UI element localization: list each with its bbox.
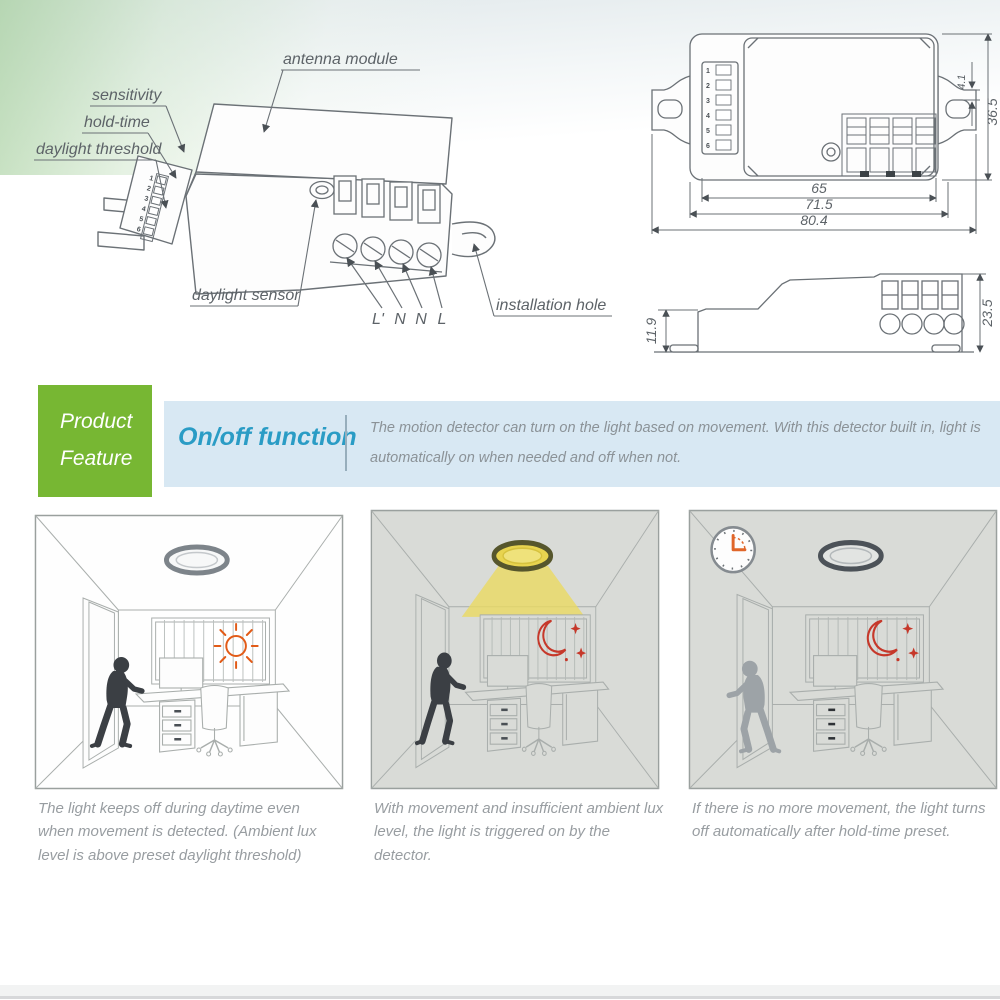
side-dimension-lines: [658, 274, 986, 352]
footer-strip: [0, 985, 1000, 999]
scene-daytime-light-off: [34, 514, 344, 790]
dim-overall-height: 23.5: [979, 299, 995, 327]
scene-night-light-on: [370, 509, 660, 790]
hold-time-label: hold-time: [84, 114, 150, 131]
dip-digit: 6: [706, 143, 710, 150]
daylight-threshold-label: daylight threshold: [36, 141, 163, 158]
top-view-body: [652, 34, 976, 180]
feature-heading: On/off function: [178, 423, 357, 452]
clock-icon: [712, 527, 755, 572]
sensor-isometric-drawing: 1 2 3 4 5 6 L': [0, 28, 620, 378]
dim-front-height: 11.9: [643, 318, 659, 344]
feature-banner: On/off function The motion detector can …: [164, 401, 1000, 487]
terminal-label-n2: N: [415, 311, 427, 328]
dip-digit: 1: [706, 68, 710, 75]
scene-1-caption: The light keeps off during daytime even …: [38, 797, 338, 867]
daylight-sensor-lens: [310, 182, 334, 199]
feature-description-line2: automatically on when needed and off whe…: [370, 443, 990, 473]
dim-width-inner: 65: [811, 180, 827, 196]
terminal-label-n1: N: [394, 311, 406, 328]
top-view-daylight-sensor: [822, 143, 840, 161]
tag-line-1: Product: [60, 404, 152, 441]
daylight-sensor-label: daylight sensor: [192, 287, 300, 304]
sensitivity-label: sensitivity: [92, 87, 162, 104]
terminal-label-l: L: [438, 311, 447, 328]
banner-divider: [345, 415, 347, 471]
dip-digit: 5: [706, 128, 710, 135]
tag-line-2: Feature: [60, 441, 152, 478]
side-view-body: [654, 274, 974, 352]
dim-height: 36.5: [984, 98, 1000, 125]
antenna-module-label: antenna module: [283, 51, 398, 68]
scene-no-movement-light-off: [688, 509, 998, 790]
dip-digit: 2: [706, 83, 710, 90]
ceiling-lamp-off: [820, 543, 881, 569]
dip-digit: 3: [706, 98, 710, 105]
sensor-side-view-drawing: 11.9 23.5: [628, 248, 1000, 376]
installation-hole-label: installation hole: [496, 297, 606, 314]
dim-width-outer: 80.4: [800, 212, 827, 228]
scene-2-caption: With movement and insufficient ambient l…: [374, 797, 666, 867]
ceiling-lamp-off: [166, 547, 227, 573]
feature-description: The motion detector can turn on the ligh…: [370, 413, 990, 474]
ceiling-lamp-on: [494, 543, 551, 569]
dim-ear-offset: 4.1: [956, 74, 968, 89]
dip-digit: 4: [706, 113, 710, 120]
product-feature-sheet: 1 2 3 4 5 6 L': [0, 0, 1000, 1000]
sensor-top-view-drawing: 1 2 3 4 5 6: [628, 20, 1000, 248]
scene-3-caption: If there is no more movement, the light …: [692, 797, 998, 844]
dim-width-mid: 71.5: [805, 196, 832, 212]
feature-description-line1: The motion detector can turn on the ligh…: [370, 413, 990, 443]
terminal-label-l-prime: L': [372, 311, 385, 328]
product-feature-tag: Product Feature: [38, 385, 152, 497]
